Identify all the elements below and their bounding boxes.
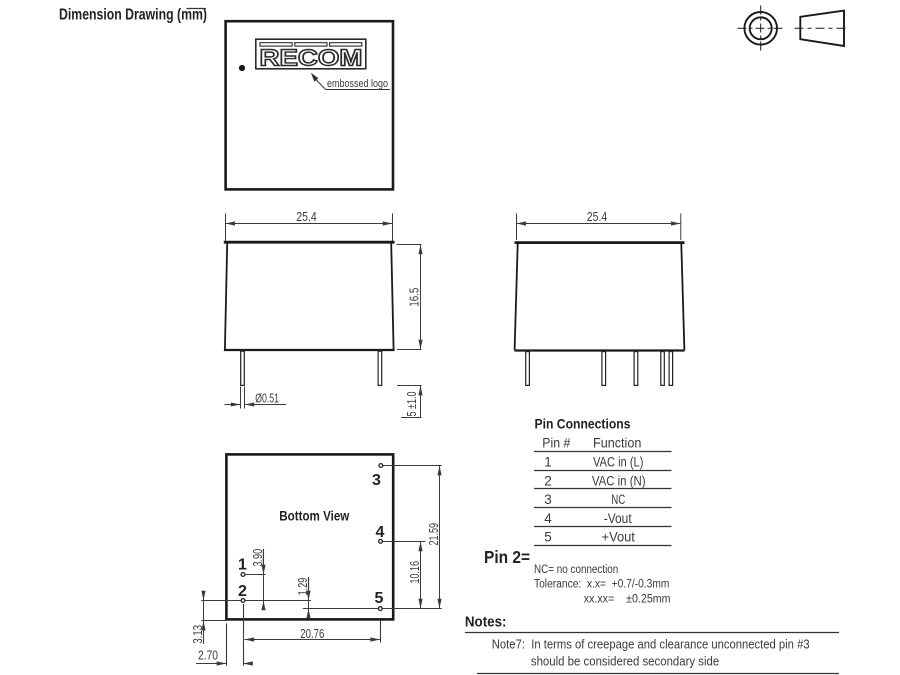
svg-text:RECOM: RECOM xyxy=(260,44,363,70)
svg-text:3.13: 3.13 xyxy=(190,625,205,644)
svg-text:2: 2 xyxy=(544,473,552,488)
svg-text:+Vout: +Vout xyxy=(602,530,636,545)
svg-text:xx.xx= ±0.25mm: xx.xx= ±0.25mm xyxy=(584,594,671,606)
svg-text:Pin #: Pin # xyxy=(542,436,570,451)
svg-text:25.4: 25.4 xyxy=(587,209,607,224)
svg-text:Notes:: Notes: xyxy=(465,615,507,631)
svg-text:Pin 2=: Pin 2= xyxy=(484,547,530,567)
svg-text:4: 4 xyxy=(375,524,384,541)
svg-text:Pin Connections: Pin Connections xyxy=(535,416,631,431)
svg-text:20.76: 20.76 xyxy=(300,626,324,641)
svg-text:10.16: 10.16 xyxy=(407,561,422,584)
svg-text:VAC in (L): VAC in (L) xyxy=(593,455,644,470)
svg-text:3: 3 xyxy=(372,472,381,489)
svg-text:embossed logo: embossed logo xyxy=(327,78,388,90)
svg-text:5 ±1.0: 5 ±1.0 xyxy=(404,392,419,417)
svg-text:1: 1 xyxy=(544,455,552,470)
svg-text:2: 2 xyxy=(238,583,247,600)
svg-text:VAC in (N): VAC in (N) xyxy=(592,473,646,488)
svg-text:Ø0.51: Ø0.51 xyxy=(255,390,279,405)
svg-text:NC= no connection: NC= no connection xyxy=(534,564,618,576)
svg-text:16.5: 16.5 xyxy=(406,288,421,307)
svg-text:-Vout: -Vout xyxy=(604,511,632,526)
svg-text:NC: NC xyxy=(611,492,625,507)
svg-text:25.4: 25.4 xyxy=(296,209,316,224)
svg-text:21.59: 21.59 xyxy=(426,523,441,546)
svg-text:3.90: 3.90 xyxy=(251,549,265,567)
svg-text:Dimension Drawing (mm): Dimension Drawing (mm) xyxy=(59,7,207,24)
svg-text:Note7: In terms of creepage a: Note7: In terms of creepage and clearanc… xyxy=(492,637,810,652)
svg-text:5: 5 xyxy=(374,590,383,607)
svg-text:Tolerance: x.x= +0.7/-0.3mm: Tolerance: x.x= +0.7/-0.3mm xyxy=(534,578,669,590)
svg-text:5: 5 xyxy=(544,530,552,545)
svg-text:2.70: 2.70 xyxy=(198,648,218,663)
svg-text:1.29: 1.29 xyxy=(296,578,310,596)
svg-text:Bottom View: Bottom View xyxy=(279,509,349,524)
svg-text:4: 4 xyxy=(544,511,552,526)
svg-text:1: 1 xyxy=(238,557,247,574)
svg-text:should be considered secondary: should be considered secondary side xyxy=(531,654,719,669)
svg-text:Function: Function xyxy=(593,436,641,451)
svg-text:3: 3 xyxy=(544,492,552,507)
